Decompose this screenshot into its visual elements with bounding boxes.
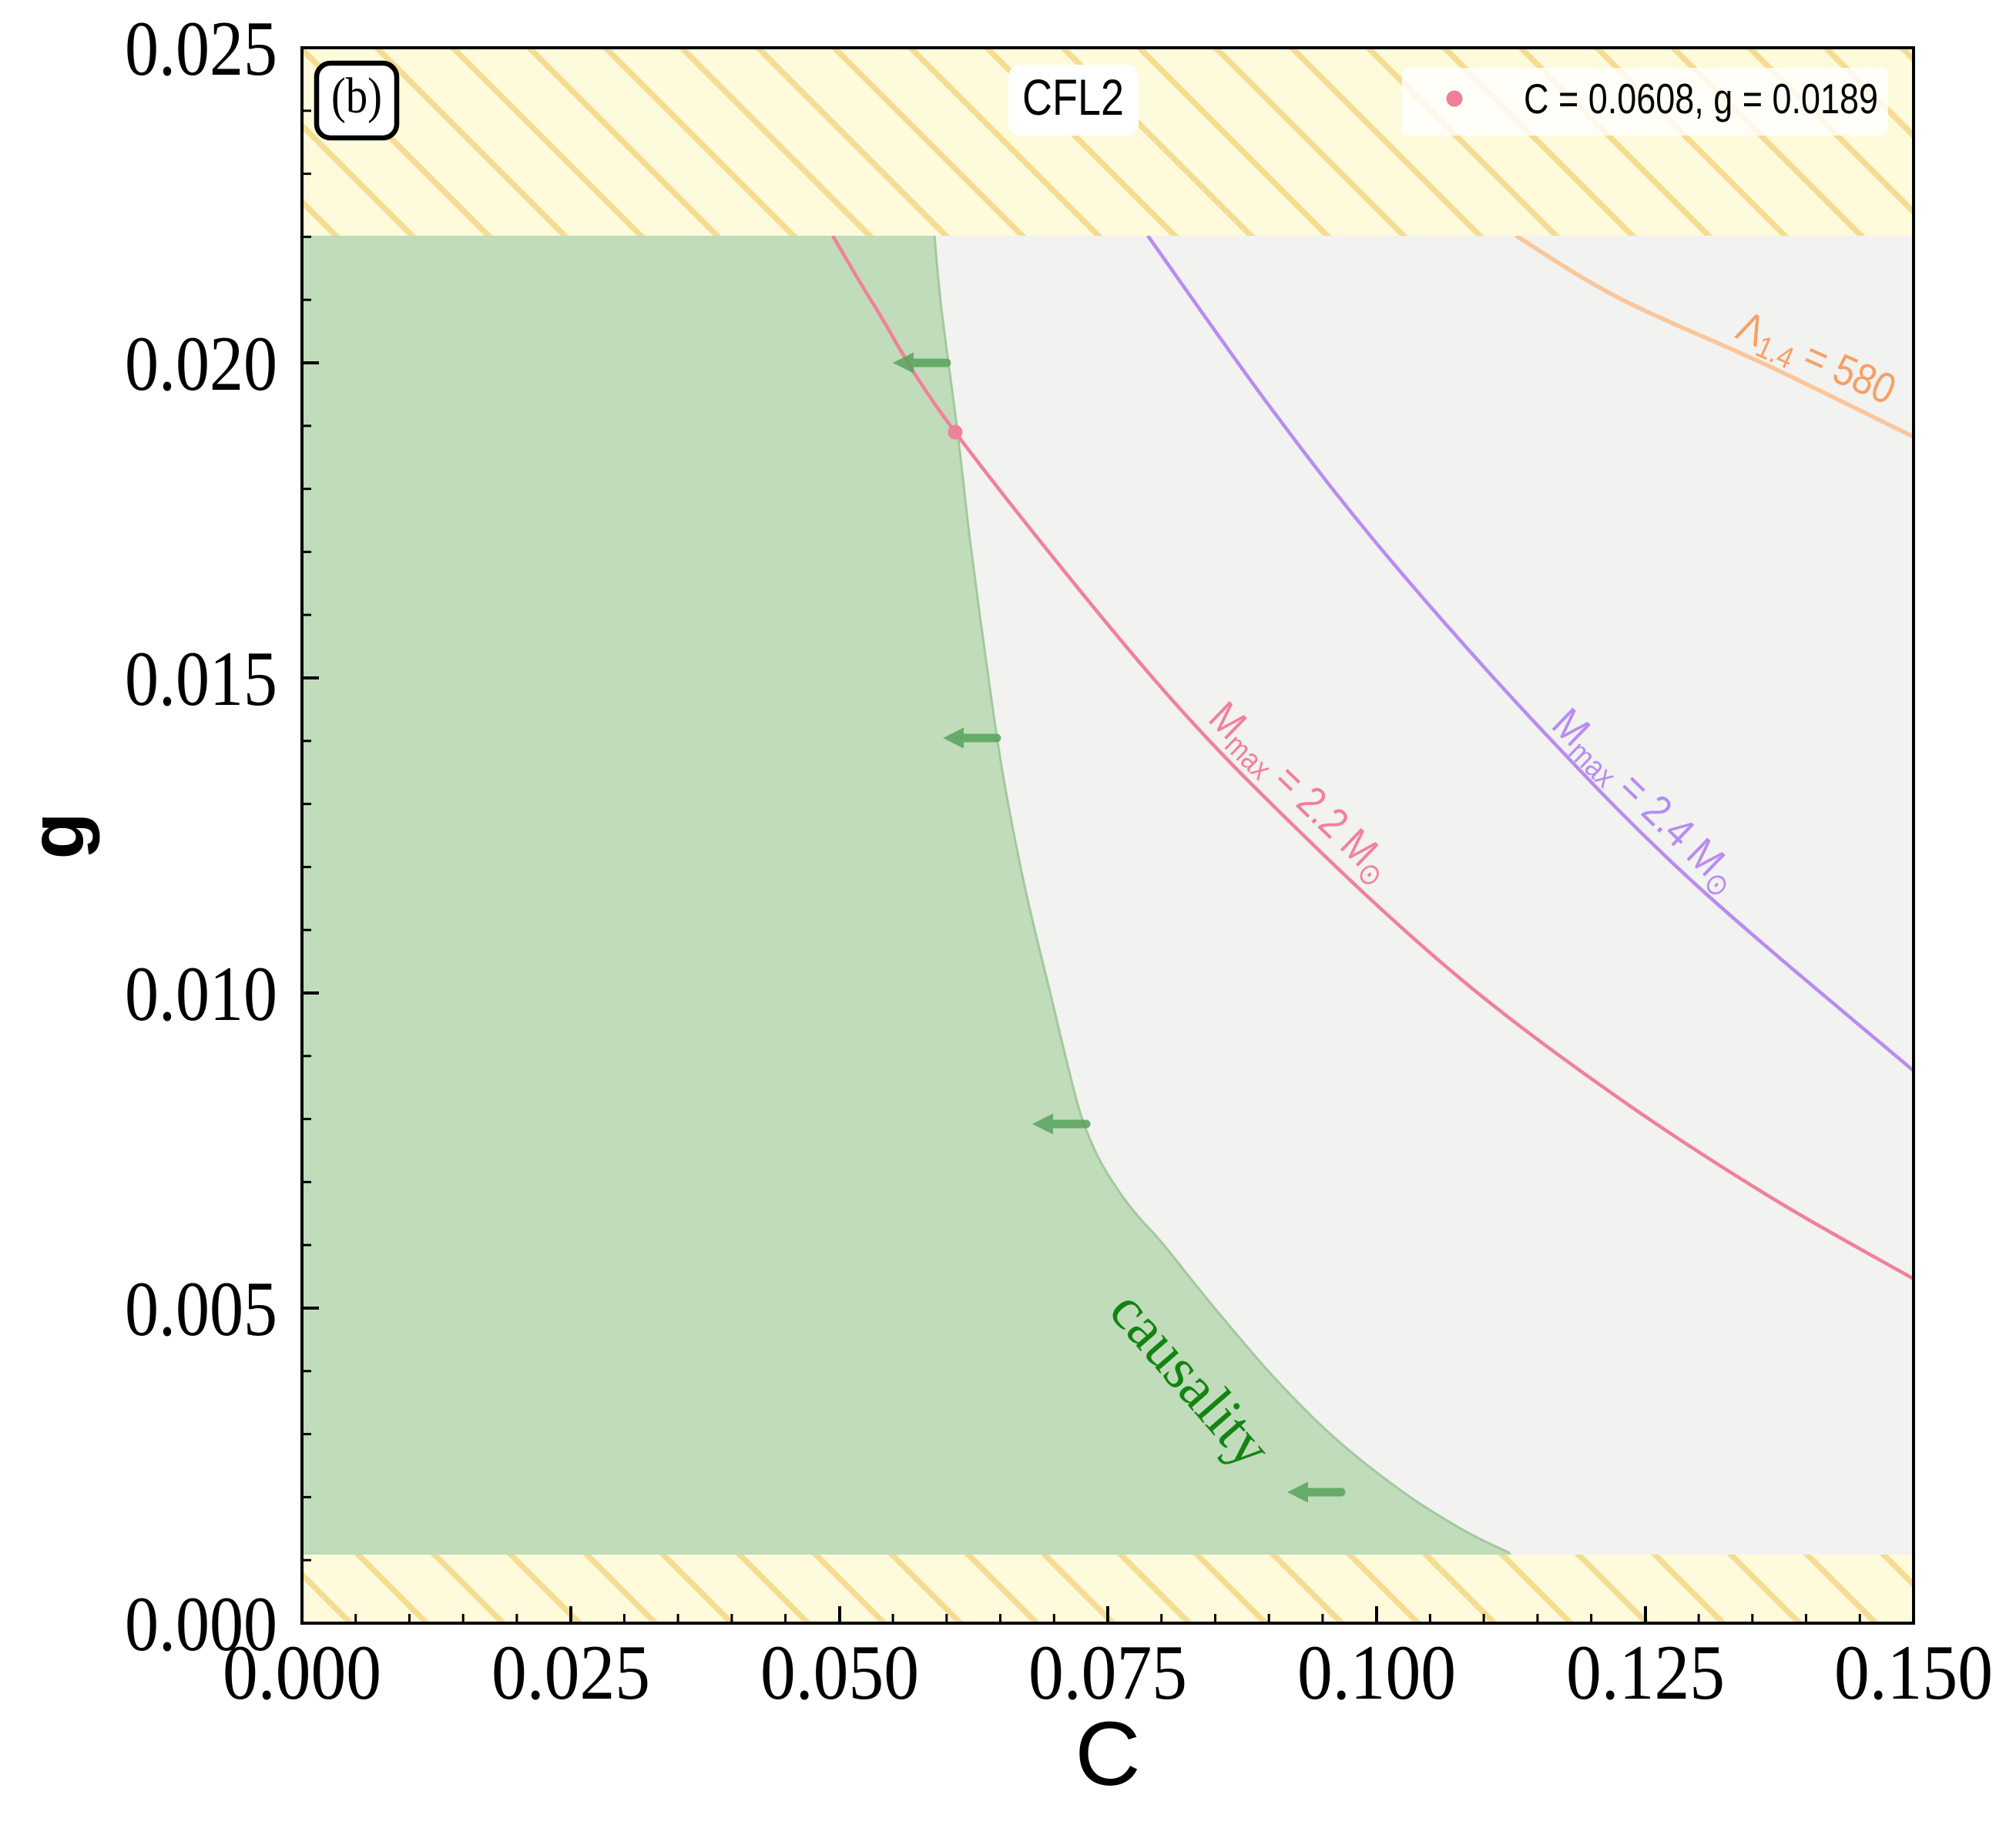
svg-text:0.000: 0.000: [125, 1581, 277, 1668]
svg-text:0.100: 0.100: [1297, 1629, 1456, 1716]
svg-text:0.025: 0.025: [125, 5, 277, 92]
svg-text:(b): (b): [331, 68, 382, 124]
svg-text:0.005: 0.005: [125, 1266, 277, 1353]
svg-text:0.150: 0.150: [1834, 1629, 1993, 1716]
svg-text:g: g: [14, 812, 100, 859]
svg-text:C: C: [1075, 1703, 1140, 1805]
svg-text:CFL2: CFL2: [1022, 69, 1124, 126]
svg-text:0.015: 0.015: [125, 636, 277, 723]
svg-text:0.025: 0.025: [491, 1629, 650, 1716]
svg-text:0.020: 0.020: [125, 320, 277, 408]
svg-text:0.010: 0.010: [125, 951, 277, 1038]
svg-text:0.125: 0.125: [1566, 1629, 1725, 1716]
svg-text:C = 0.0608, g = 0.0189: C = 0.0608, g = 0.0189: [1524, 75, 1878, 122]
svg-text:0.050: 0.050: [760, 1629, 919, 1716]
